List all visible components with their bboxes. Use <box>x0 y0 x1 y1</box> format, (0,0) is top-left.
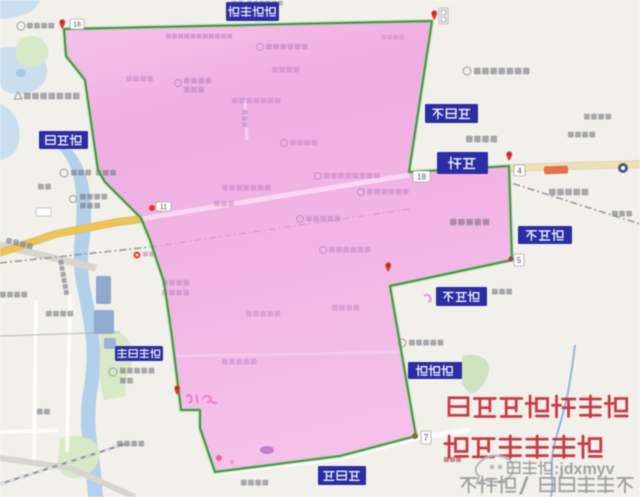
svg-text:5: 5 <box>517 256 522 265</box>
svg-text:11: 11 <box>160 204 167 211</box>
svg-text:7: 7 <box>423 433 428 443</box>
svg-text:18: 18 <box>417 172 426 181</box>
svg-text:4: 4 <box>517 166 522 175</box>
svg-text:18: 18 <box>73 22 81 29</box>
svg-text::jdxmyv: :jdxmyv <box>554 461 615 478</box>
